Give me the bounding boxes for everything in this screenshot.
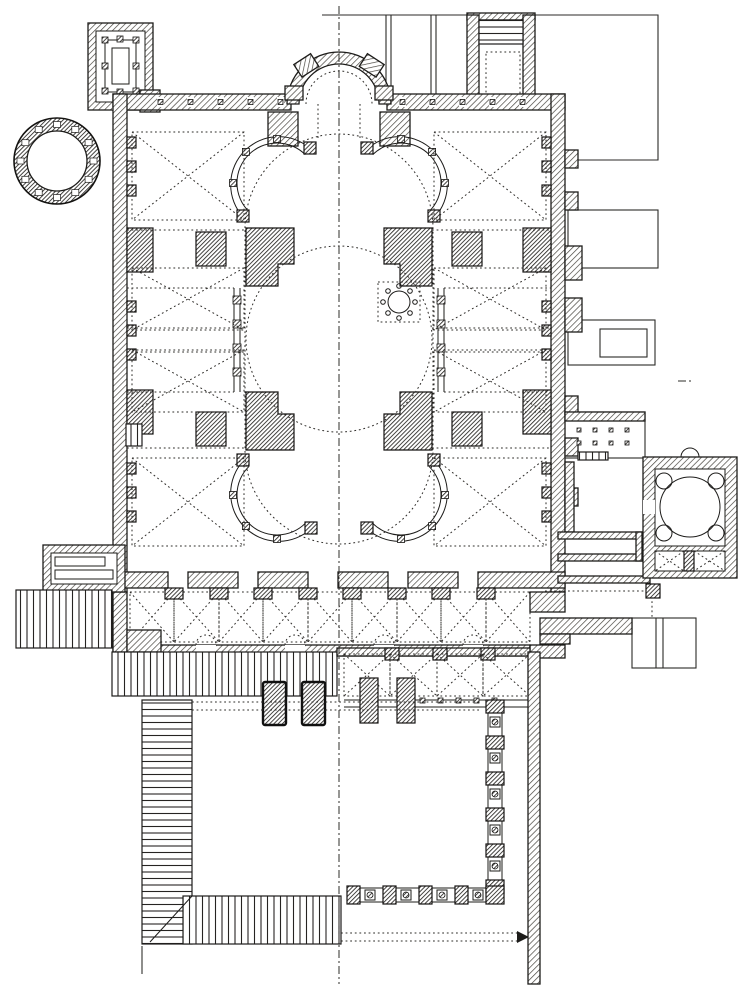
courtyard-pier-block: [302, 682, 325, 725]
atrium-south-steps: [183, 896, 341, 944]
courtyard-pier-block: [263, 682, 286, 725]
chancel-pier-east: [380, 112, 410, 146]
west-wall: [113, 94, 127, 592]
floor-plan-figure: [0, 0, 752, 1000]
wall-stair-block: [126, 424, 142, 446]
chancel-pier-west: [268, 112, 298, 146]
ramp-stairs: [479, 20, 523, 44]
rotunda-annex: [14, 118, 100, 204]
atrium-east-wall: [528, 652, 540, 984]
domed-baptistery-annex: [643, 448, 737, 578]
floor-plan-svg: [0, 0, 752, 1000]
east-wall: [551, 94, 565, 592]
